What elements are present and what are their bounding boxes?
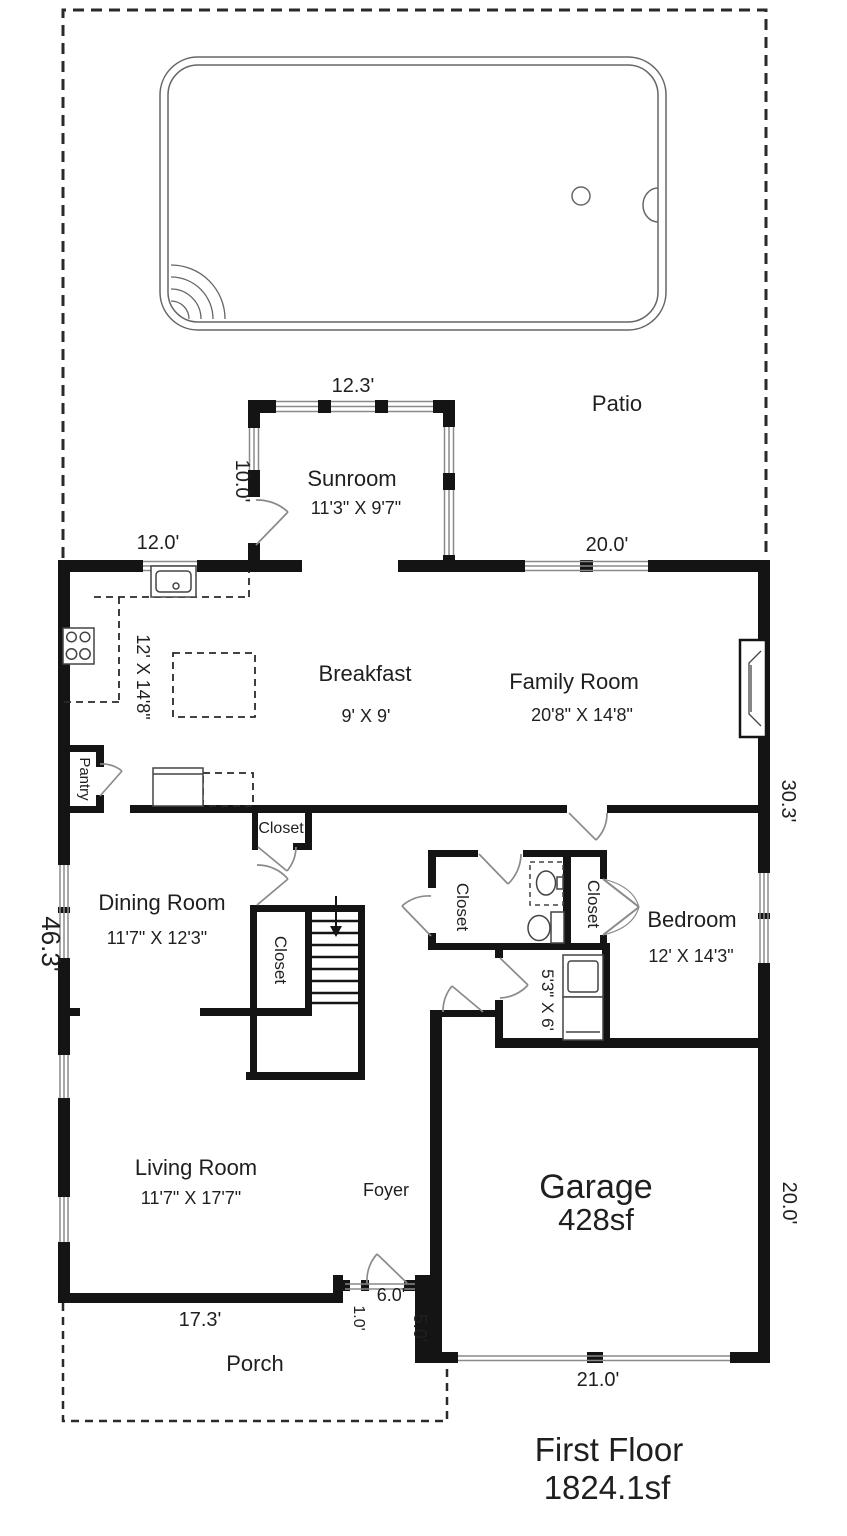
refrigerator (153, 768, 203, 806)
breakfast-dims: 9' X 9' (342, 706, 391, 726)
washer (563, 955, 603, 997)
front-door (367, 1254, 407, 1283)
pantry-door (100, 764, 122, 796)
toilet (528, 912, 564, 943)
kitchen-island (173, 653, 255, 717)
family-room-dims: 20'8" X 14'8" (531, 705, 633, 725)
pool-drain (572, 187, 590, 205)
stove (63, 628, 94, 664)
pool-inner-outline (168, 65, 658, 322)
garage-width-dim: 21.0' (577, 1369, 620, 1391)
pool (160, 57, 666, 330)
pool-skimmer (643, 188, 658, 222)
stair-closet-label: Closet (271, 936, 290, 984)
garage-offset-dim: 5.0' (410, 1314, 430, 1342)
stair-direction-arrow (330, 926, 342, 937)
dining-room-dims: 11'7" X 12'3" (107, 928, 207, 948)
bathroom-door (479, 854, 521, 884)
hall-closet-label: Closet (258, 820, 304, 837)
living-width-dim: 17.3' (179, 1309, 222, 1331)
staircase (312, 896, 358, 1003)
kitchen-sink (151, 566, 196, 597)
kitchen-counter-end (203, 773, 253, 806)
plan-area: 1824.1sf (544, 1469, 671, 1506)
garage-depth-dim: 20.0' (778, 1182, 800, 1225)
laundry-door (500, 958, 528, 998)
sunroom-door (256, 500, 288, 545)
garage-entry-door (443, 986, 483, 1012)
fireplace (740, 640, 766, 737)
hall-closet-door (258, 847, 296, 871)
porch-label: Porch (226, 1351, 283, 1376)
pool-steps (171, 265, 225, 319)
entry-side-dim: 1.0' (350, 1305, 367, 1330)
garage-label: Garage (539, 1168, 652, 1206)
sunroom-label: Sunroom (307, 466, 396, 491)
left-closet-door (402, 896, 431, 936)
laundry-dims: 5'3" X 6' (538, 969, 557, 1031)
sunroom-top-windows (276, 402, 433, 412)
pantry-label: Pantry (76, 757, 93, 801)
garage-area: 428sf (558, 1202, 634, 1237)
patio-label: Patio (592, 391, 642, 416)
sunroom-dims: 11'3" X 9'7" (311, 498, 401, 518)
bedroom-label: Bedroom (647, 907, 736, 932)
floor-plan: Patio 12.3' Sunroom 11'3" X 9'7" 10.0' 1… (0, 0, 847, 1536)
floor-plan-drawing: Patio 12.3' Sunroom 11'3" X 9'7" 10.0' 1… (0, 0, 847, 1536)
living-room-dims: 11'7" X 17'7" (141, 1188, 241, 1208)
sunroom-depth-dim: 10.0' (231, 460, 253, 503)
bedroom-dims: 12' X 14'3" (648, 946, 733, 966)
bathroom-vanity (530, 862, 563, 905)
dining-room-label: Dining Room (98, 890, 225, 915)
sunroom-width-dim: 12.3' (332, 375, 375, 397)
foyer-label: Foyer (363, 1180, 409, 1200)
left-closet-label: Closet (453, 883, 472, 931)
sunroom-side-windows (250, 427, 454, 555)
kitchen-window-dim: 12.0' (137, 532, 180, 554)
dryer (563, 997, 603, 1040)
bedroom-closet-label: Closet (584, 880, 603, 928)
plan-title: First Floor (535, 1431, 684, 1468)
breakfast-label: Breakfast (319, 661, 412, 686)
kitchen-dims: 12' X 14'8" (133, 634, 153, 719)
fixtures (63, 566, 766, 1040)
bedroom-closet-doors (603, 879, 639, 935)
stair-closet-door (257, 865, 288, 905)
living-room-label: Living Room (135, 1155, 257, 1180)
left-side-dim: 46.3' (36, 916, 66, 972)
right-side-dim: 30.3' (777, 780, 799, 823)
entry-width-dim: 6.0' (377, 1285, 405, 1305)
family-window-dim: 20.0' (586, 534, 629, 556)
family-room-label: Family Room (509, 669, 639, 694)
hallway-door (569, 813, 607, 840)
